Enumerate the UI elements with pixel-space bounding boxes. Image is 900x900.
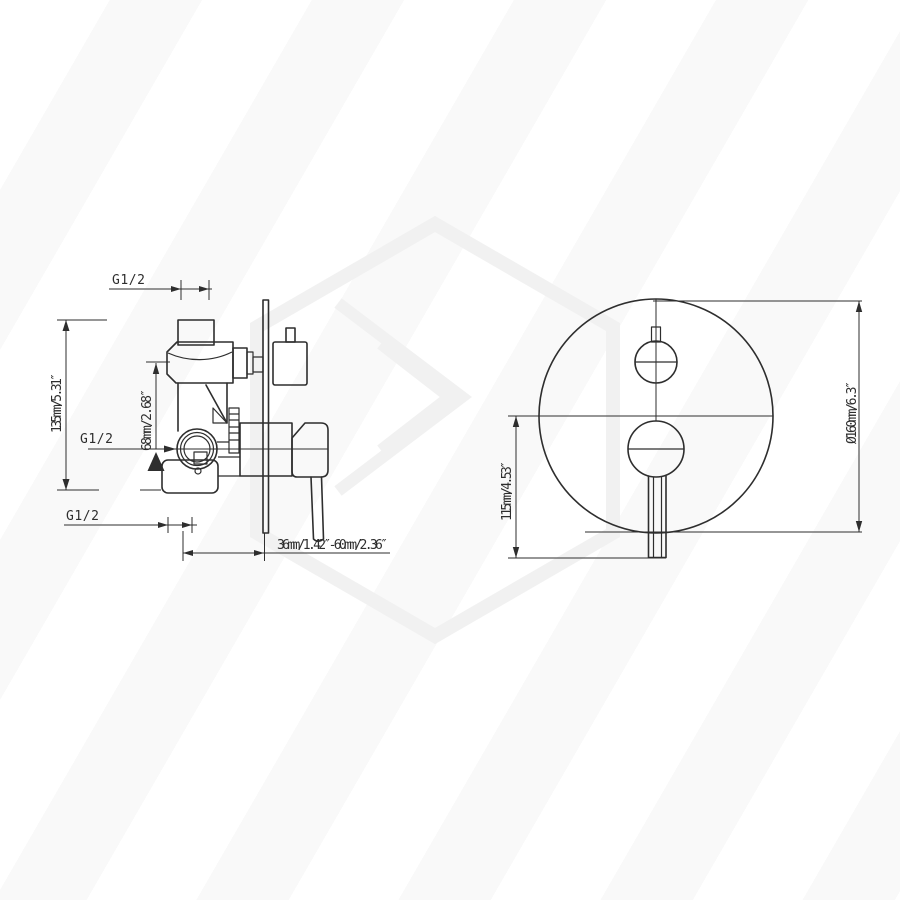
upper-body: [167, 342, 233, 383]
handle-lever-front: [649, 476, 667, 558]
handle-drop-label: 115mm/4.53″: [500, 461, 515, 521]
body-height-label: 135mm/5.31″: [50, 373, 65, 433]
handle-hub-side: [292, 423, 328, 477]
dim-side-port: G1/2: [80, 432, 328, 453]
handle-lever-side: [311, 477, 324, 541]
watermark-logo: [257, 224, 613, 636]
plate-diameter-label: Ø160mm/6.3″: [845, 381, 860, 444]
centerlines: [508, 299, 773, 421]
top-port-label: G1/2: [112, 273, 145, 288]
drawing-canvas: G1/2 135mm/5.31″ G1/2: [0, 0, 900, 900]
bottom-port-label: G1/2: [66, 509, 99, 524]
dim-top-port: G1/2: [109, 273, 212, 300]
dim-handle-drop: 115mm/4.53″: [500, 416, 666, 558]
dim-port-offset: 68mm/2.68″: [140, 362, 170, 471]
front-view: 115mm/4.53″ Ø160mm/6.3″: [500, 299, 862, 558]
cartridge-stem: [229, 408, 239, 453]
port-offset-label: 68mm/2.68″: [140, 389, 155, 451]
diverter-stem-side: [286, 328, 295, 342]
valve-body: [162, 300, 328, 541]
side-port-label: G1/2: [80, 432, 113, 447]
lower-column: [178, 383, 227, 431]
install-depth-label: 36mm/1.42″-60mm/2.36″: [277, 538, 388, 553]
dim-bottom-port: G1/2: [64, 509, 197, 533]
union-nut: [233, 348, 247, 378]
side-view: G1/2 135mm/5.31″ G1/2: [50, 273, 390, 561]
technical-drawing: G1/2 135mm/5.31″ G1/2: [0, 0, 900, 900]
diverter-knob-side: [273, 342, 307, 385]
